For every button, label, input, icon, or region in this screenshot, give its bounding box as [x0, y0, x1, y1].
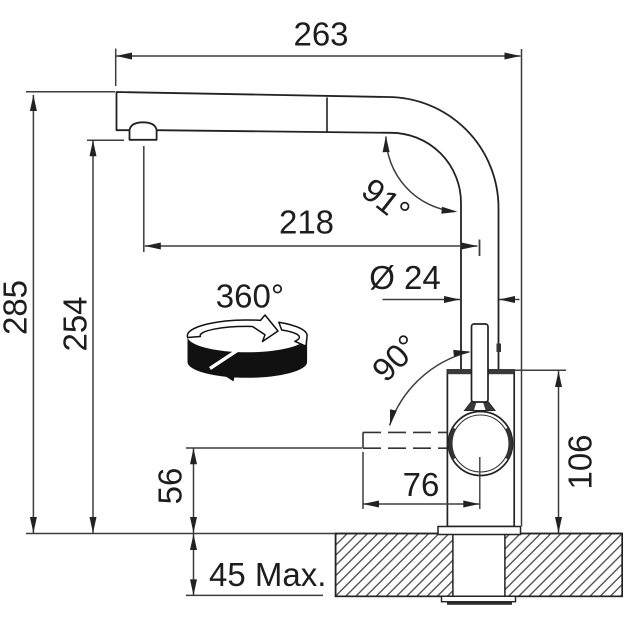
- svg-text:218: 218: [279, 204, 334, 241]
- svg-text:285: 285: [0, 280, 34, 335]
- svg-text:106: 106: [562, 434, 599, 489]
- svg-text:56: 56: [152, 468, 189, 505]
- svg-text:45 Max.: 45 Max.: [209, 556, 326, 593]
- svg-text:76: 76: [403, 466, 440, 503]
- svg-text:254: 254: [57, 296, 94, 351]
- svg-text:Ø 24: Ø 24: [369, 259, 441, 296]
- svg-text:263: 263: [293, 16, 348, 53]
- svg-text:360°: 360°: [216, 278, 284, 315]
